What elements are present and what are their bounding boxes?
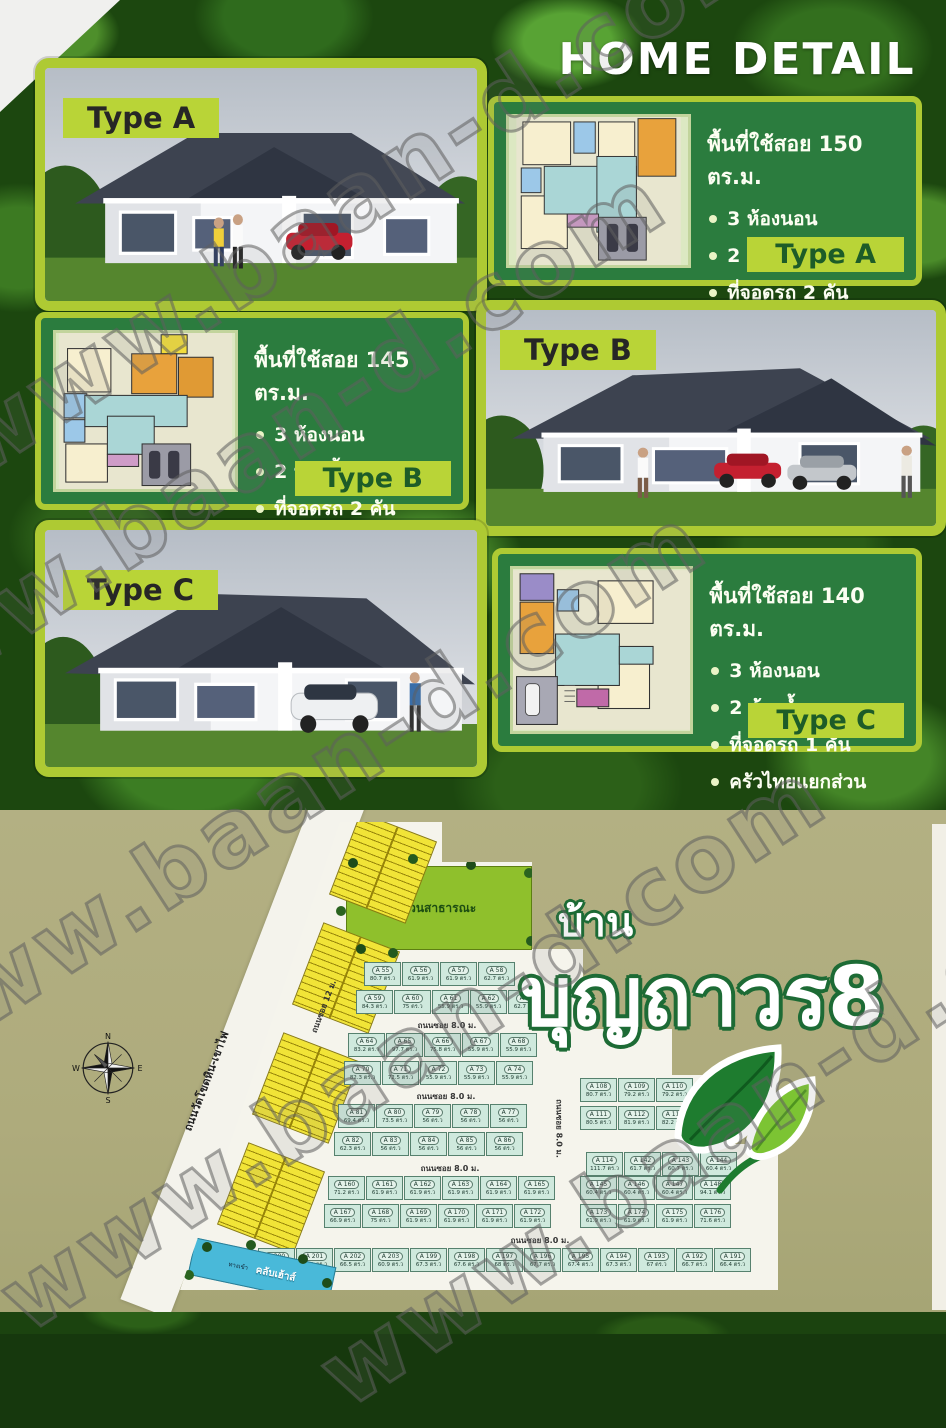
lot-a-85: A 8556 ตร.ว (448, 1132, 485, 1156)
bullet-dot (711, 667, 719, 675)
lot-a-172: A 17261.9 ตร.ว (514, 1204, 551, 1228)
lot-a-60: A 6075 ตร.ว (394, 990, 431, 1014)
type-b-detail-panel: พื้นที่ใช้สอย 145 ตร.ม. 3 ห้องนอน2 ห้องน… (35, 312, 469, 510)
soi-road-label: ถนนซอย 8.0 ม. (420, 1234, 660, 1247)
type-b-photo-label: Type B (500, 330, 656, 370)
type-a-detail-panel: พื้นที่ใช้สอย 150 ตร.ม. 3 ห้องนอน2 ห้องน… (488, 96, 922, 286)
lot-a-81: A 8169.4 ตร.ว (338, 1104, 375, 1128)
lot-a-56: A 5661.9 ตร.ว (402, 962, 439, 986)
soi-road-label: ถนนซอย 8.0 ม. (350, 1162, 550, 1175)
compass-e: E (137, 1064, 142, 1073)
type-c-floorplan (510, 566, 693, 734)
lot-a-171: A 17161.9 ตร.ว (476, 1204, 513, 1228)
entrance-label: ทางเข้า (228, 1259, 249, 1273)
compass-n: N (105, 1032, 111, 1041)
feature-item: ครัวไทยแยกส่วน (707, 767, 904, 797)
compass-rose: N E S W (72, 1032, 144, 1104)
lot-a-70: A 7082.3 ตร.ว (344, 1061, 381, 1085)
type-c-area: พื้นที่ใช้สอย 140 ตร.ม. (709, 580, 904, 646)
soi-road-label: ถนนซอย 8.0 ม. (356, 1090, 536, 1103)
lot-a-84: A 8456 ตร.ว (410, 1132, 447, 1156)
bullet-dot (709, 289, 717, 297)
bullet-dot (711, 741, 719, 749)
lot-row: A 5580.7 ตร.วA 5661.9 ตร.วA 5761.9 ตร.วA… (364, 962, 515, 986)
compass-w: W (72, 1064, 80, 1073)
lot-a-203: A 20360.9 ตร.ว (372, 1248, 409, 1272)
lot-a-59: A 5984.3 ตร.ว (356, 990, 393, 1014)
lot-a-73: A 7355.9 ตร.ว (458, 1061, 495, 1085)
lot-a-67: A 6755.9 ตร.ว (462, 1033, 499, 1057)
bullet-dot (711, 704, 719, 712)
lot-a-176: A 17671.6 ตร.ว (694, 1204, 731, 1228)
lot-row: A 6483.2 ตร.วA 6597.7 ตร.วA 6675.8 ตร.วA… (348, 1033, 537, 1057)
lot-row: A 8169.4 ตร.วA 8073.5 ตร.วA 7956 ตร.วA 7… (338, 1104, 527, 1128)
lot-a-82: A 8262.3 ตร.ว (334, 1132, 371, 1156)
bullet-dot (256, 468, 264, 476)
bottom-green-bar (0, 1312, 946, 1334)
lot-a-109: A 10979.2 ตร.ว (618, 1078, 655, 1102)
leaf-logo (660, 1028, 820, 1198)
type-b-label: Type B (295, 461, 451, 496)
feature-item: 3 ห้องนอน (705, 204, 904, 234)
entrance-trees (202, 1242, 212, 1252)
lot-a-146: A 14660.4 ตร.ว (618, 1176, 655, 1200)
lot-a-112: A 11281.9 ตร.ว (618, 1106, 655, 1130)
lot-a-62: A 6255.9 ตร.ว (470, 990, 507, 1014)
lot-a-196: A 19667.7 ตร.ว (524, 1248, 561, 1272)
park-trees (348, 858, 358, 868)
lot-a-169: A 16961.9 ตร.ว (400, 1204, 437, 1228)
lot-a-168: A 16875 ตร.ว (362, 1204, 399, 1228)
lot-a-191: A 19166.4 ตร.ว (714, 1248, 751, 1272)
lot-a-195: A 19567.4 ตร.ว (562, 1248, 599, 1272)
lot-a-160: A 16071.2 ตร.ว (328, 1176, 365, 1200)
compass-s: S (105, 1096, 110, 1104)
lot-a-175: A 17561.9 ตร.ว (656, 1204, 693, 1228)
type-b-floorplan-drawing (56, 333, 235, 489)
lot-a-61: A 6155.9 ตร.ว (432, 990, 469, 1014)
lot-a-71: A 7172.5 ตร.ว (382, 1061, 419, 1085)
lot-a-161: A 16161.9 ตร.ว (366, 1176, 403, 1200)
lot-a-114: A 114111.7 ตร.ว (586, 1152, 623, 1176)
lot-a-170: A 17061.9 ตร.ว (438, 1204, 475, 1228)
type-a-area: พื้นที่ใช้สอย 150 ตร.ม. (707, 128, 904, 194)
type-c-detail-panel: พื้นที่ใช้สอย 140 ตร.ม. 3 ห้องนอน2 ห้องน… (492, 548, 922, 752)
lot-a-74: A 7455.9 ตร.ว (496, 1061, 533, 1085)
type-a-photo-panel: Type A (35, 58, 487, 311)
lot-a-65: A 6597.7 ตร.ว (386, 1033, 423, 1057)
type-a-floorplan (506, 114, 691, 268)
type-c-floorplan-drawing (513, 569, 690, 731)
lot-a-142: A 14261.7 ตร.ว (624, 1152, 661, 1176)
bullet-dot (709, 252, 717, 260)
yellow-lot-strip-cluster (217, 1142, 325, 1254)
lot-a-66: A 6675.8 ตร.ว (424, 1033, 461, 1057)
lot-row: A 8262.3 ตร.วA 8356 ตร.วA 8456 ตร.วA 855… (334, 1132, 523, 1156)
type-a-label: Type A (747, 237, 904, 272)
lot-row: A 16071.2 ตร.วA 16161.9 ตร.วA 16261.9 ตร… (328, 1176, 555, 1200)
lot-a-79: A 7956 ตร.ว (414, 1104, 451, 1128)
clubhouse-label: คลับเฮ้าส์ (254, 1262, 297, 1285)
lot-a-58: A 5862.7 ตร.ว (478, 962, 515, 986)
type-c-photo-panel: Type C (35, 520, 487, 777)
bullet-dot (256, 431, 264, 439)
type-a-photo-label: Type A (63, 98, 219, 138)
lot-a-86: A 8656 ตร.ว (486, 1132, 523, 1156)
lot-a-64: A 6483.2 ตร.ว (348, 1033, 385, 1057)
lot-a-108: A 10880.7 ตร.ว (580, 1078, 617, 1102)
lot-a-199: A 19967.3 ตร.ว (410, 1248, 447, 1272)
feature-item: 3 ห้องนอน (252, 420, 451, 450)
type-b-floorplan (53, 330, 238, 492)
type-c-label: Type C (748, 703, 904, 738)
type-c-house-render (45, 530, 477, 767)
type-b-photo-panel: Type B (476, 300, 946, 536)
lot-a-198: A 19867.6 ตร.ว (448, 1248, 485, 1272)
lot-a-194: A 19467.3 ตร.ว (600, 1248, 637, 1272)
feature-item: 3 ห้องนอน (707, 656, 904, 686)
lot-row: A 17361.9 ตร.วA 17461.9 ตร.วA 17561.9 ตร… (580, 1204, 731, 1228)
lot-row: A 16766.9 ตร.วA 16875 ตร.วA 16961.9 ตร.ว… (324, 1204, 551, 1228)
lot-a-173: A 17361.9 ตร.ว (580, 1204, 617, 1228)
lot-a-164: A 16461.9 ตร.ว (480, 1176, 517, 1200)
lot-row: A 7082.3 ตร.วA 7172.5 ตร.วA 7255.9 ตร.วA… (344, 1061, 533, 1085)
lot-row: A 5984.3 ตร.วA 6075 ตร.วA 6155.9 ตร.วA 6… (356, 990, 545, 1014)
lot-a-80: A 8073.5 ตร.ว (376, 1104, 413, 1128)
bullet-dot (256, 505, 264, 513)
lot-a-192: A 19266.7 ตร.ว (676, 1248, 713, 1272)
lot-a-55: A 5580.7 ตร.ว (364, 962, 401, 986)
lot-a-167: A 16766.9 ตร.ว (324, 1204, 361, 1228)
lot-a-202: A 20266.5 ตร.ว (334, 1248, 371, 1272)
lot-a-193: A 19367 ตร.ว (638, 1248, 675, 1272)
site-plan-section: ถนนวัดโขดหิน-เขาไฟ N E S W สวนสาธารณะ ถน… (0, 810, 946, 1334)
lot-a-163: A 16361.9 ตร.ว (442, 1176, 479, 1200)
lot-a-72: A 7255.9 ตร.ว (420, 1061, 457, 1085)
type-c-photo-label: Type C (63, 570, 218, 610)
soi-road-label: ถนนซอย 8.0 ม. (362, 1019, 532, 1032)
lot-a-162: A 16261.9 ตร.ว (404, 1176, 441, 1200)
lot-a-78: A 7856 ตร.ว (452, 1104, 489, 1128)
lot-a-174: A 17461.9 ตร.ว (618, 1204, 655, 1228)
page-edge (932, 824, 946, 1310)
page-title: HOME DETAIL (548, 34, 926, 85)
soi-road-vertical-label: ถนนซอย 8.0 ม. (553, 1084, 566, 1174)
lot-a-57: A 5761.9 ตร.ว (440, 962, 477, 986)
type-a-floorplan-drawing (509, 117, 688, 265)
lot-a-111: A 11180.5 ตร.ว (580, 1106, 617, 1130)
lot-a-145: A 14560.4 ตร.ว (580, 1176, 617, 1200)
lot-a-165: A 16561.9 ตร.ว (518, 1176, 555, 1200)
bullet-dot (709, 215, 717, 223)
lot-a-77: A 7756 ตร.ว (490, 1104, 527, 1128)
lot-a-197: A 19768 ตร.ว (486, 1248, 523, 1272)
lot-a-83: A 8356 ตร.ว (372, 1132, 409, 1156)
type-b-area: พื้นที่ใช้สอย 145 ตร.ม. (254, 344, 451, 410)
bullet-dot (711, 778, 719, 786)
